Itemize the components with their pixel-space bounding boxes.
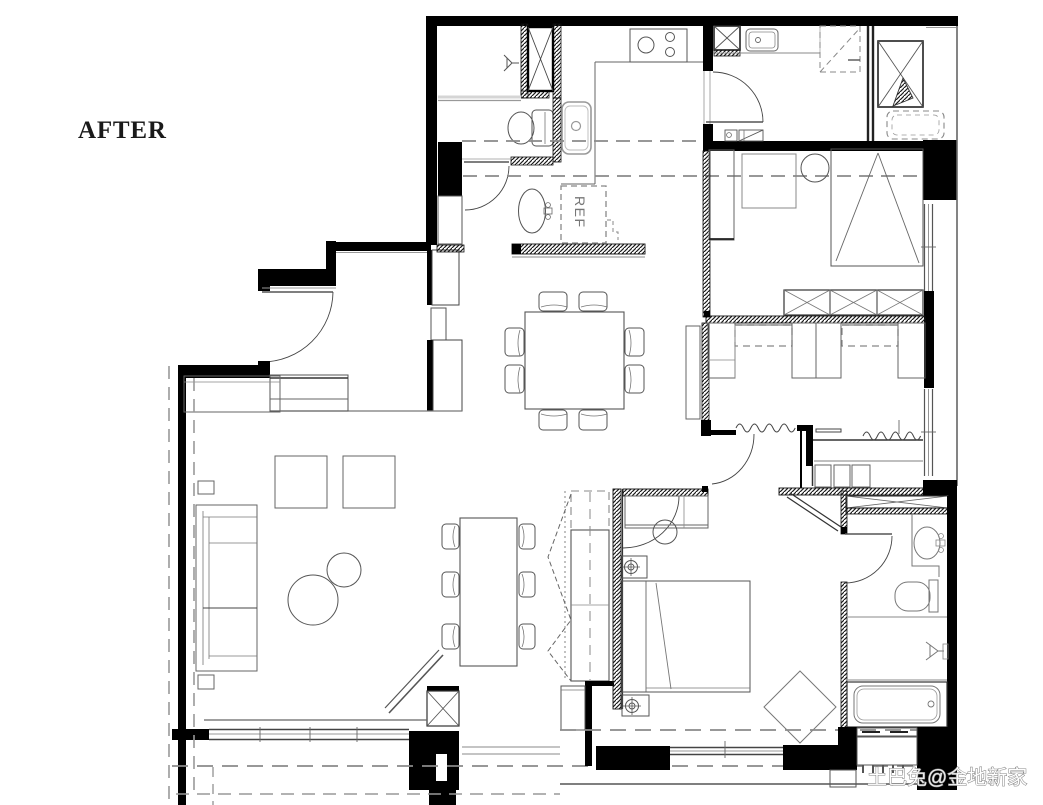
svg-text:土巴兔@金地新家: 土巴兔@金地新家 xyxy=(867,766,1027,789)
svg-text:AFTER: AFTER xyxy=(78,117,167,144)
svg-text:REF: REF xyxy=(572,196,588,229)
